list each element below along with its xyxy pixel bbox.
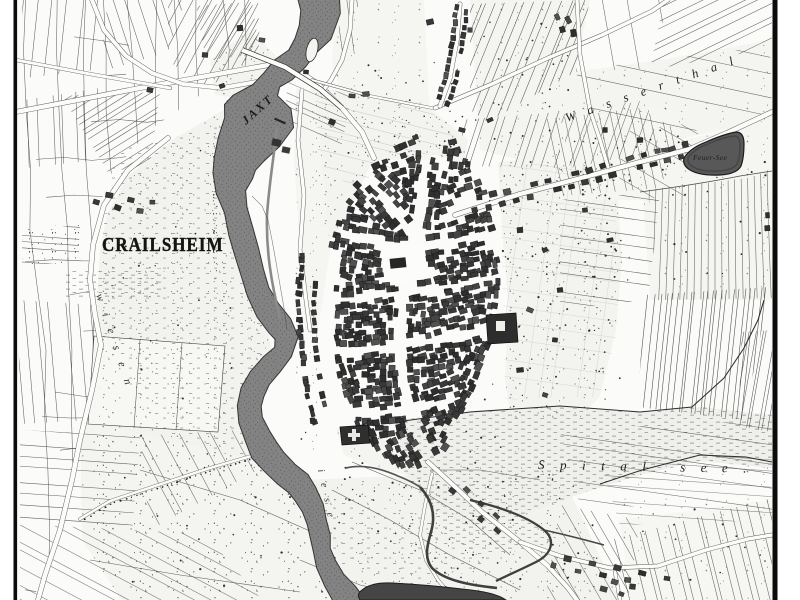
svg-text:Feuer-See: Feuer-See	[692, 153, 728, 162]
svg-text:CRAILSHEIM: CRAILSHEIM	[102, 234, 224, 257]
